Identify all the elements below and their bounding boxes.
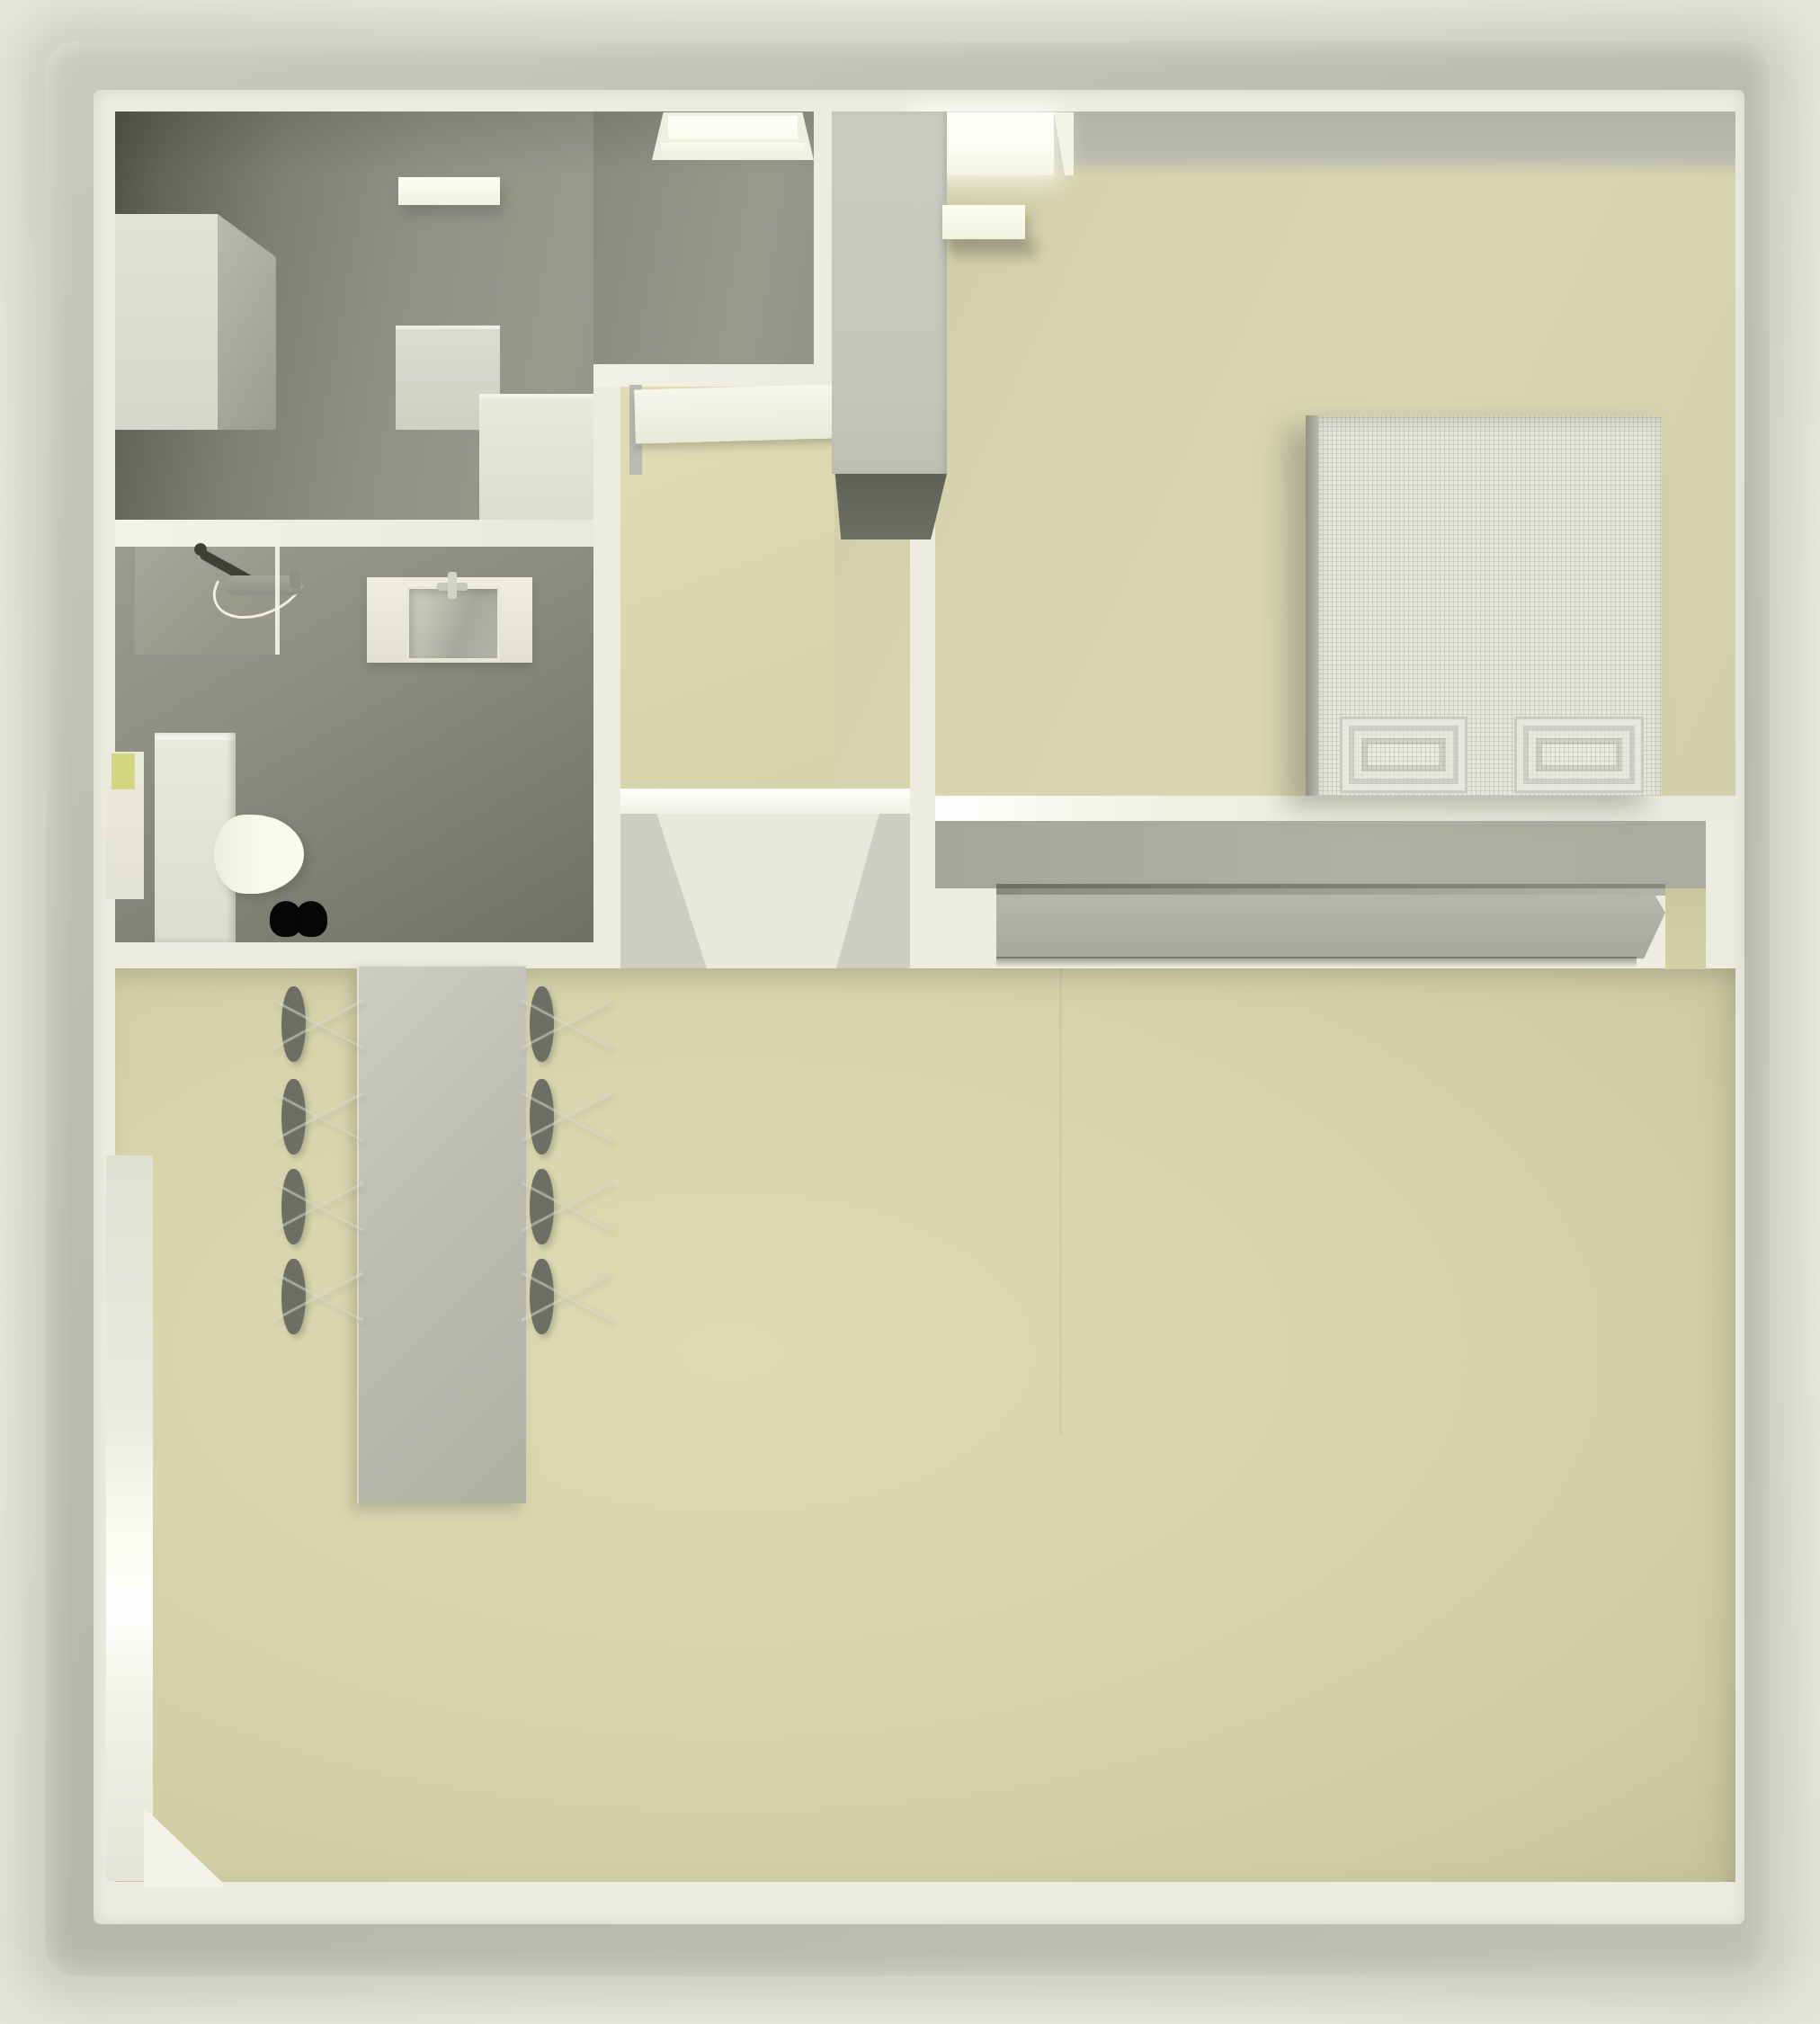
living-floor-patch xyxy=(1665,888,1706,969)
sideboard-shadow xyxy=(996,957,1637,967)
floorplan-render xyxy=(0,0,1820,2024)
double-bed xyxy=(1306,415,1662,796)
chair-legs xyxy=(522,1248,611,1345)
dining-chair xyxy=(529,1255,604,1338)
study-corner-cabinet xyxy=(479,394,593,520)
dining-chair xyxy=(529,1075,604,1158)
dining-chair xyxy=(529,1165,604,1248)
bedroom-ceiling-light xyxy=(942,205,1025,239)
wall-bedroom-living xyxy=(935,796,1735,821)
open-door-panel xyxy=(634,384,861,444)
chair-legs xyxy=(273,1158,363,1255)
chair-legs xyxy=(522,1068,611,1165)
bed-side-face xyxy=(1306,415,1318,796)
chair-legs xyxy=(273,1248,363,1345)
bathroom-window-glass xyxy=(112,753,135,789)
chair-legs xyxy=(273,976,363,1073)
dining-chair xyxy=(281,1255,356,1338)
bedroom-wardrobe-base-shadow xyxy=(832,474,947,539)
bed-pillow-right xyxy=(1514,717,1644,793)
dining-chair xyxy=(281,1075,356,1158)
bedroom-light-shadow xyxy=(951,239,1038,259)
hall-threshold xyxy=(620,789,910,814)
wall-hall-west xyxy=(593,387,620,968)
dining-chair xyxy=(281,1165,356,1248)
shower-glass-panel xyxy=(275,547,280,655)
living-floor-seam xyxy=(1059,968,1062,1436)
bed-pillow-left xyxy=(1340,717,1468,793)
chair-legs xyxy=(522,976,611,1073)
wall-sideboard-gap-shadow xyxy=(996,884,1665,896)
dining-chair xyxy=(281,983,356,1065)
hall-corridor-opening xyxy=(620,814,910,968)
dining-chair xyxy=(529,983,604,1065)
shower-knob xyxy=(290,570,300,588)
study-ceiling-light xyxy=(398,177,500,205)
wall-study-bath xyxy=(115,520,593,547)
black-slippers xyxy=(270,901,327,937)
bedroom-wardrobe-front xyxy=(832,111,947,474)
chair-legs xyxy=(273,1068,363,1165)
wall-bedroom-living-face xyxy=(935,821,1706,888)
study-north-window xyxy=(652,112,814,160)
washbasin-faucet xyxy=(448,572,457,599)
study-wardrobe-front xyxy=(115,214,218,430)
chair-legs xyxy=(522,1158,611,1255)
dining-table xyxy=(357,965,526,1503)
living-west-window-band xyxy=(106,1155,153,1881)
sideboard xyxy=(996,895,1665,959)
